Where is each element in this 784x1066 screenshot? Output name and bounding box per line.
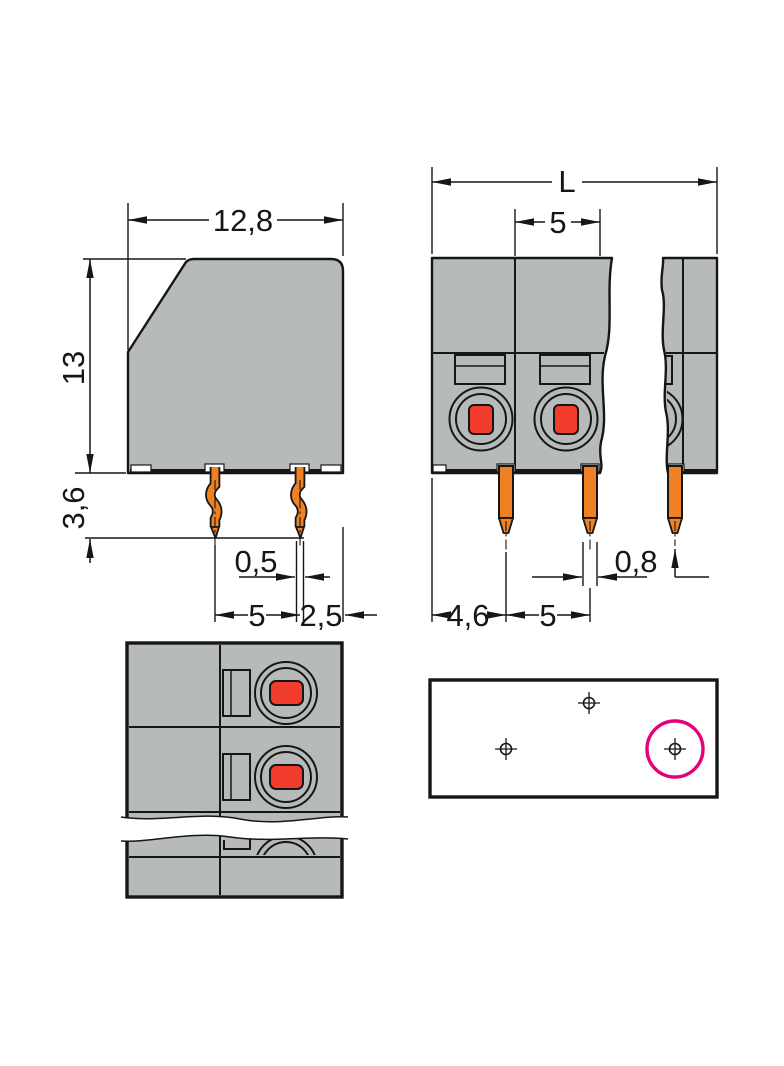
dim-body-width-label: 12,8 [213,203,273,238]
solder-pin-side-1 [210,467,219,548]
pcb-outline [430,680,717,797]
insertion-direction-arrow [675,549,709,577]
push-button [469,405,493,434]
dim-pole-width-label: 5 [549,205,566,240]
dim-pin-length-label: 3,6 [56,486,91,529]
dim-total-length-label: L [558,164,575,199]
dim-pin-width-label: 0,8 [614,544,657,579]
dim-pin-to-edge-label: 2,5 [299,598,342,633]
break-line [121,816,348,841]
foot-notch [321,465,341,472]
dim-edge-to-pin-label: 4,6 [446,598,489,633]
top-view [121,643,348,898]
dim-pin-width: 0,8 [532,542,658,586]
push-button [270,765,303,789]
dim-body-height-label: 13 [56,351,91,385]
side-view: 12,8 13 3,6 0,5 [56,203,377,633]
dim-total-length: L [432,164,717,254]
drilling-plan [430,680,717,797]
push-button [554,405,578,434]
push-button [270,681,303,705]
solder-pin-side-2 [295,467,304,548]
dim-side-pin-pitch-label: 5 [248,598,265,633]
dim-pole-width: 5 [515,205,600,256]
solder-pin-front-1 [499,466,513,550]
foot-notch [433,465,446,472]
solder-pin-front-2 [583,466,597,550]
side-view-housing [128,259,343,473]
dim-pin-thickness-label: 0,5 [234,544,277,579]
front-view-end-piece [620,258,718,473]
technical-drawing-page: 12,8 13 3,6 0,5 [0,0,784,1066]
front-view: L 5 4,6 5 0,8 [432,164,717,633]
terminal-block-dimension-drawing: 12,8 13 3,6 0,5 [0,0,784,1066]
foot-notch [131,465,151,472]
solder-pin-front-3 [668,466,682,546]
dim-front-pin-pitch-label: 5 [539,598,556,633]
